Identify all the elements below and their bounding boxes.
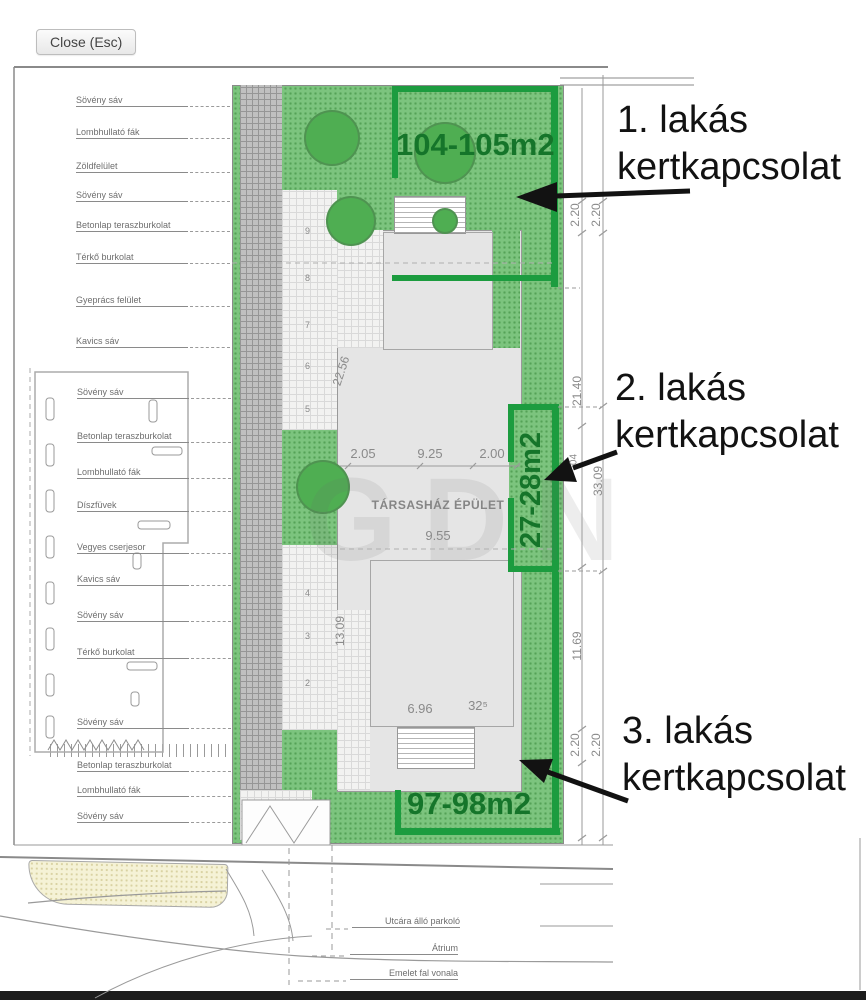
legend-label: Díszfüvek xyxy=(77,500,189,512)
dimension-label: 11.69 xyxy=(570,616,584,676)
building-notch-terrace-upper xyxy=(337,230,383,348)
garden1-border-right xyxy=(551,86,558,287)
traffic-island xyxy=(28,860,229,908)
dimension-label: 32⁵ xyxy=(460,698,496,713)
legend-label: Kavics sáv xyxy=(77,574,189,586)
legend-label: Sövény sáv xyxy=(77,387,189,399)
garden3-area-label: 97-98m2 xyxy=(407,786,531,822)
perimeter-hatch-strip xyxy=(240,85,282,790)
dimension-label: 2.20 xyxy=(568,185,582,245)
garden1-area-label: 104-105m2 xyxy=(396,127,555,163)
apartment3-annotation: 3. lakás kertkapcsolat xyxy=(622,708,846,802)
close-button[interactable]: Close (Esc) xyxy=(36,29,136,55)
tree-icon xyxy=(432,208,458,234)
apartment1-sub: kertkapcsolat xyxy=(617,144,841,191)
tree-icon xyxy=(304,110,360,166)
legend-label: Vegyes cserjesor xyxy=(77,542,189,554)
dimension-label: 21.40 xyxy=(570,361,584,421)
stair-number: 7 xyxy=(305,320,310,330)
legend-label: Kavics sáv xyxy=(76,336,188,348)
legend-label: Sövény sáv xyxy=(77,610,189,622)
neighbor-building-outline xyxy=(30,368,188,756)
dimension-label: 2.20 xyxy=(589,715,603,775)
dimension-label: 9.55 xyxy=(420,528,456,543)
apartment3-name: 3. lakás xyxy=(622,708,846,755)
legend-label: Lombhullató fák xyxy=(77,467,189,479)
building-notch-garden-upper xyxy=(492,230,520,348)
stair-number: 8 xyxy=(305,273,310,283)
legend-label: Térkő burkolat xyxy=(77,647,189,659)
neighbor-window-marks xyxy=(46,398,182,738)
stair-number: 6 xyxy=(305,361,310,371)
legend-label: Lombhullató fák xyxy=(77,785,189,797)
legend-label: Sövény sáv xyxy=(76,190,188,202)
dimension-label: 13.09 xyxy=(333,601,347,661)
legend-label: Betonlap teraszburkolat xyxy=(77,760,189,772)
stair-number: 9 xyxy=(305,226,310,236)
apartment1-name: 1. lakás xyxy=(617,97,841,144)
legend-label: Betonlap teraszburkolat xyxy=(77,431,189,443)
building-name-label: TÁRSASHÁZ ÉPÜLET xyxy=(358,498,518,512)
bottom-bar xyxy=(0,991,866,1000)
legend-label: Térkő burkolat xyxy=(76,252,188,264)
dimension-label: 2.20 xyxy=(589,185,603,245)
dimension-label: 9.25 xyxy=(412,446,448,461)
apartment2-sub: kertkapcsolat xyxy=(615,412,839,459)
legend-label: Lombhullató fák xyxy=(76,127,188,139)
garden1-border-top xyxy=(392,86,558,92)
dimension-label: 2.20 xyxy=(568,715,582,775)
apartment1-annotation: 1. lakás kertkapcsolat xyxy=(617,97,841,191)
stair-number: 4 xyxy=(305,588,310,598)
tree-icon xyxy=(326,196,376,246)
road-label: Emelet fal vonala xyxy=(350,968,458,980)
stair-number: 2 xyxy=(305,678,310,688)
apartment2-name: 2. lakás xyxy=(615,365,839,412)
road-label: Átrium xyxy=(350,943,458,955)
garden2-area-label: 27-28m2 xyxy=(515,410,549,570)
garden1-border-bottom xyxy=(392,275,558,281)
garden3-border-bottom xyxy=(395,828,560,835)
legend-label: Betonlap teraszburkolat xyxy=(76,220,188,232)
legend-label: Sövény sáv xyxy=(77,717,189,729)
legend-label: Gyeprács felület xyxy=(76,295,188,307)
legend-label: Zöldfelület xyxy=(76,161,188,173)
building-upper-block xyxy=(383,232,493,350)
dimension-label: 33.09 xyxy=(591,451,605,511)
apartment2-annotation: 2. lakás kertkapcsolat xyxy=(615,365,839,459)
stairs-bottom xyxy=(397,727,475,769)
dimension-label: 6.96 xyxy=(402,701,438,716)
walkway-bottom xyxy=(240,790,312,840)
dimension-label: 04 xyxy=(569,450,580,470)
legend-label: Sövény sáv xyxy=(77,811,189,823)
apartment3-sub: kertkapcsolat xyxy=(622,755,846,802)
hedge-comb-marker xyxy=(50,744,230,757)
stair-number: 5 xyxy=(305,404,310,414)
stair-number: 3 xyxy=(305,631,310,641)
dimension-label: 2.05 xyxy=(345,446,381,461)
road-label: Utcára álló parkoló xyxy=(352,916,460,928)
dimension-label: 2.00 xyxy=(474,446,510,461)
legend-label: Sövény sáv xyxy=(76,95,188,107)
site-plan-viewer: GDN xyxy=(0,0,866,1000)
